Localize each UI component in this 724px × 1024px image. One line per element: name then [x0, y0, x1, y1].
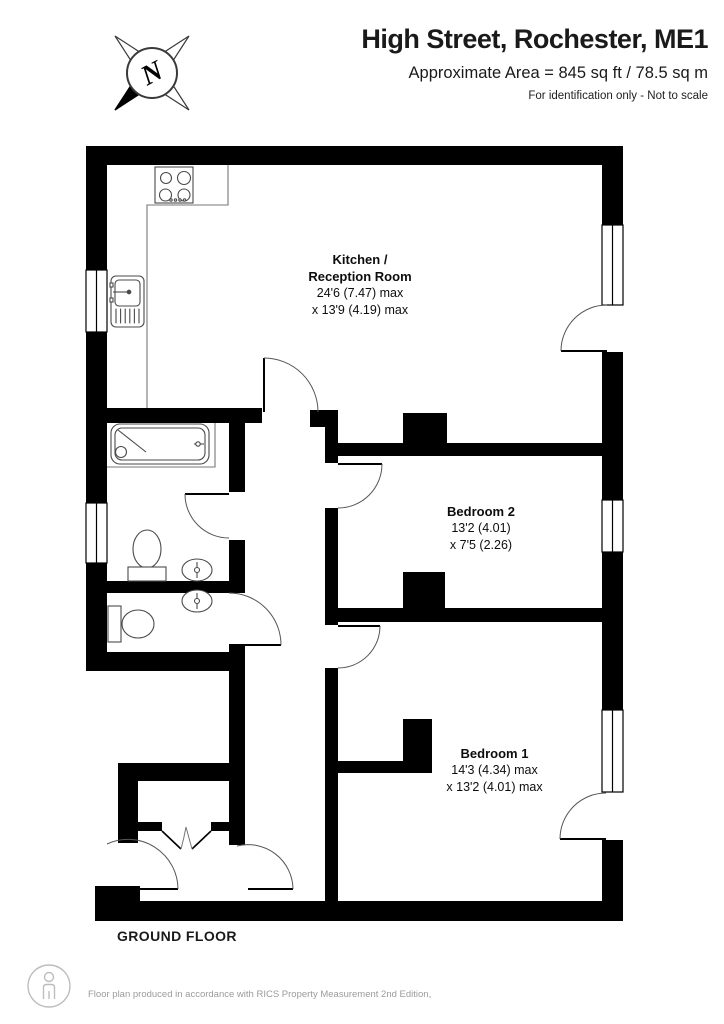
kitchen-right-door: [561, 305, 607, 351]
bedroom2-label: Bedroom 2 13'2 (4.01) x 7'5 (2.26): [400, 503, 562, 554]
kitchen-label: Kitchen / Reception Room 24'6 (7.47) max…: [275, 251, 445, 319]
person-icon: [44, 973, 55, 1000]
bathroom-fixtures: [107, 423, 215, 581]
doors: [107, 305, 607, 889]
bedroom1-dims-line2: x 13'2 (4.01) max: [412, 779, 577, 796]
entrance-door-right: [237, 845, 293, 889]
sink-icon: [110, 276, 144, 327]
bathroom-basin-icon: [182, 559, 212, 581]
hob-icon: [155, 167, 193, 203]
kitchen-window-right: [602, 225, 623, 305]
bathroom-window: [86, 503, 107, 563]
bedroom1-label: Bedroom 1 14'3 (4.34) max x 13'2 (4.01) …: [412, 745, 577, 796]
floor-name-label: GROUND FLOOR: [117, 928, 237, 944]
bathroom-toilet-icon: [128, 530, 166, 581]
bedroom1-name: Bedroom 1: [412, 745, 577, 762]
footer-line1: Floor plan produced in accordance with R…: [88, 989, 518, 1002]
kitchen-dims-line2: x 13'9 (4.19) max: [275, 302, 445, 319]
bedroom1-window: [602, 710, 623, 792]
kitchen-hall-door: [264, 358, 318, 412]
page-title: High Street, Rochester, ME1: [361, 24, 708, 55]
wc-toilet-icon: [108, 606, 154, 642]
header: High Street, Rochester, ME1 Approximate …: [361, 24, 708, 102]
cupboard-double-doors: [162, 827, 211, 849]
kitchen-name-line2: Reception Room: [275, 268, 445, 285]
entrance-door-left: [107, 839, 178, 889]
footer-logo: [28, 965, 70, 1007]
approximate-area: Approximate Area = 845 sq ft / 78.5 sq m: [361, 64, 708, 83]
kitchen-fixtures: [110, 165, 228, 408]
wc-fixtures: [108, 590, 212, 642]
floor-plan: N: [0, 0, 724, 1024]
footer-text: Floor plan produced in accordance with R…: [88, 964, 518, 1024]
logo-circle: [28, 965, 70, 1007]
bathroom-door: [185, 494, 229, 538]
compass-rose: N: [115, 36, 189, 110]
bathtub-icon: [111, 424, 209, 464]
disclaimer-note: For identification only - Not to scale: [361, 90, 708, 102]
bedroom2-door: [338, 464, 382, 508]
bedroom2-window: [602, 500, 623, 552]
bedroom2-dims-line1: 13'2 (4.01): [400, 520, 562, 537]
kitchen-dims-line1: 24'6 (7.47) max: [275, 285, 445, 302]
wc-door: [229, 593, 281, 645]
bedroom1-dims-line1: 14'3 (4.34) max: [412, 762, 577, 779]
kitchen-window-left: [86, 270, 107, 332]
bedroom1-door: [338, 626, 380, 668]
wc-basin-icon: [182, 590, 212, 612]
bedroom2-dims-line2: x 7'5 (2.26): [400, 537, 562, 554]
kitchen-name-line1: Kitchen /: [275, 251, 445, 268]
bedroom2-name: Bedroom 2: [400, 503, 562, 520]
floorplan-page: N: [0, 0, 724, 1024]
bedroom1-right-door: [560, 793, 606, 839]
